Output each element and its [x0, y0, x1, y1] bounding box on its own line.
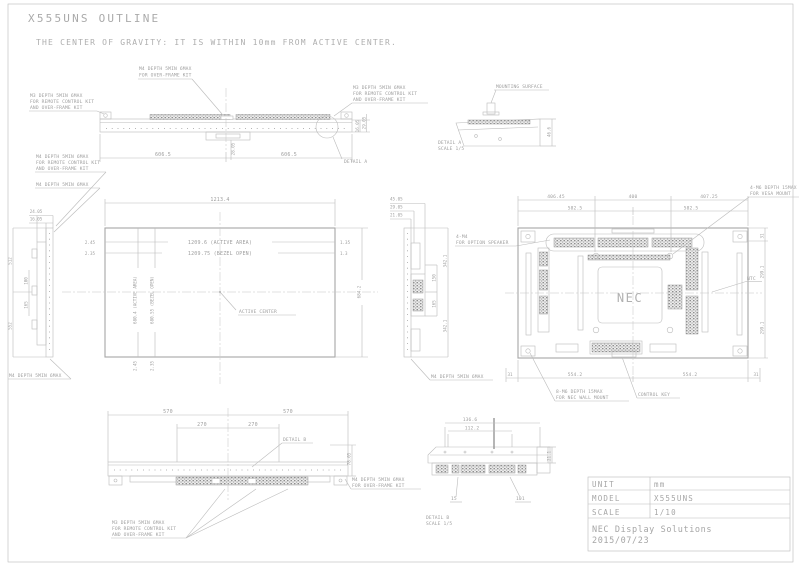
mounting-surface-label: MOUNTING SURFACE — [496, 84, 543, 90]
dim-bottom-left-2: 2.35 — [150, 360, 155, 371]
unit-label: UNIT — [592, 480, 615, 489]
front-view-active-dim: 1209.6 (ACTIVE AREA) 2.45 1.35 — [85, 240, 351, 246]
dim-3: 270 — [197, 422, 207, 428]
dim-bottom-4: 31 — [753, 372, 759, 377]
detail-b-callout: DETAIL B — [252, 437, 313, 467]
dim-right: 21.1 — [547, 450, 552, 461]
dim-right-2: 299.1 — [760, 265, 765, 278]
dim-1: 570 — [163, 409, 173, 415]
dim-top-3: 407.25 — [700, 194, 718, 200]
drawing-sheet: X555UNS OUTLINE THE CENTER OF GRAVITY: I… — [0, 0, 802, 567]
dim-right-3: 299.1 — [760, 321, 765, 334]
svg-text:FOR REMOTE CONTROL KIT: FOR REMOTE CONTROL KIT — [112, 526, 176, 532]
dim-right-bottom: 1.3 — [340, 251, 348, 256]
front-view: 1213.4 1209.6 (ACTIVE AREA) 2.45 1.35 12… — [62, 197, 378, 384]
svg-text:M4 DEPTH 5MIN 6MAX: M4 DEPTH 5MIN 6MAX — [139, 66, 192, 72]
svg-text:M4 DEPTH 5MIN 6MAX: M4 DEPTH 5MIN 6MAX — [431, 374, 484, 380]
dim-2: 570 — [283, 409, 293, 415]
left-side-view: 24.05 16.05 512 552 100 165 M4 DEPTH 5MI… — [8, 154, 107, 379]
svg-text:M3 DEPTH 5MIN 6MAX: M3 DEPTH 5MIN 6MAX — [353, 85, 406, 91]
detail-a-view: MOUNTING SURFACE 46.6 DETAIL A SCALE 1/5 — [438, 84, 556, 152]
detail-a-screw — [487, 103, 495, 114]
dim-center-depth: 28.05 — [231, 142, 236, 155]
dim-active-height: 680.4 (ACTIVE AREA) — [133, 276, 138, 324]
detail-b-view: 136.6 112.2 21.1 15 101 DETAIL B SCALE 1… — [426, 417, 556, 527]
dim-depth-1: 24.05 — [30, 209, 43, 214]
svg-text:FOR OVER-FRAME KIT: FOR OVER-FRAME KIT — [352, 483, 405, 489]
dim-half-left: 606.5 — [155, 152, 171, 158]
top-vent-right — [236, 115, 330, 120]
dim-width: 1213.4 — [210, 197, 229, 203]
rear-handle-right — [737, 253, 742, 335]
top-view-note-right: M3 DEPTH 5MIN 6MAX FOR REMOTE CONTROL KI… — [334, 85, 428, 116]
bottom-depth-dim: 78.05 — [330, 445, 356, 476]
top-view-note-left: M3 DEPTH 5MIN 6MAX FOR REMOTE CONTROL KI… — [29, 93, 104, 114]
left-view-note-bottom: M4 DEPTH 5MIN 6MAX — [8, 359, 71, 379]
svg-text:M3 DEPTH 5MIN 6MAX: M3 DEPTH 5MIN 6MAX — [112, 520, 165, 526]
front-view-height-dims: 680.4 (ACTIVE AREA) 680.55 (BEZEL OPEN) … — [133, 228, 369, 371]
dim-depth-1: 45.05 — [390, 197, 403, 202]
svg-text:AND OVER-FRAME KIT: AND OVER-FRAME KIT — [353, 97, 406, 103]
dim-bezel-height: 680.55 (BEZEL OPEN) — [150, 276, 155, 324]
svg-text:AND OVER-FRAME KIT: AND OVER-FRAME KIT — [112, 532, 165, 538]
svg-text:FOR REMOTE CONTROL KIT: FOR REMOTE CONTROL KIT — [30, 99, 94, 105]
rear-handle-left — [526, 253, 531, 335]
option-slot — [668, 285, 682, 309]
dim-depth-2: 16.05 — [30, 217, 43, 222]
dim-bottom-3: 554.2 — [683, 372, 698, 378]
dim-depth-2: 29.05 — [390, 205, 403, 210]
dim-depth: 78.05 — [347, 452, 352, 465]
scale-value: 1/10 — [654, 508, 677, 517]
dim-top-2: 400 — [629, 194, 638, 200]
title-block: UNIT mm MODEL X555UNS SCALE 1/10 NEC Dis… — [588, 477, 790, 551]
svg-text:4-M4: 4-M4 — [456, 234, 468, 240]
front-view-width-dim: 1213.4 — [105, 197, 335, 226]
bottom-note-right: M4 DEPTH 5MIN 6MAX FOR OVER-FRAME KIT — [345, 477, 421, 489]
dim-bottom-1: 31 — [507, 372, 513, 377]
dim-top-4: 582.5 — [568, 206, 583, 212]
left-view-top-dims: 24.05 16.05 — [29, 209, 53, 242]
bottom-view: 570 570 270 270 DETAIL B 78.05 M4 DEPTH … — [108, 408, 421, 538]
svg-text:AND OVER-FRAME KIT: AND OVER-FRAME KIT — [36, 166, 89, 172]
svg-text:FOR REMOTE CONTROL KIT: FOR REMOTE CONTROL KIT — [353, 91, 417, 97]
dim-depth-2: 29.05 — [362, 116, 367, 129]
dim-bottom-2: 554.2 — [568, 372, 583, 378]
dim-top-5: 582.5 — [684, 206, 699, 212]
svg-text:8-M6 DEPTH 15MAX: 8-M6 DEPTH 15MAX — [556, 389, 603, 395]
left-view-note-mid: M4 DEPTH 5MIN 6MAX — [35, 182, 100, 232]
svg-text:FOR OVER-FRAME KIT: FOR OVER-FRAME KIT — [139, 73, 192, 79]
svg-text:DETAIL B: DETAIL B — [283, 437, 306, 443]
outline-drawing: X555UNS OUTLINE THE CENTER OF GRAVITY: I… — [0, 0, 802, 567]
dim-right-top: 1.35 — [340, 240, 351, 245]
detail-a-depth-dim: 46.6 — [547, 126, 552, 137]
company-name: NEC Display Solutions — [592, 525, 712, 535]
page-subtitle: THE CENTER OF GRAVITY: IT IS WITHIN 10mm… — [36, 38, 397, 47]
label-2: 101 — [516, 496, 525, 502]
dim-left-top: 2.45 — [85, 240, 96, 245]
dim-bottom-left-1: 2.45 — [133, 360, 138, 371]
svg-text:FOR VESA MOUNT: FOR VESA MOUNT — [750, 191, 791, 197]
detail-a-scale: SCALE 1/5 — [438, 146, 464, 152]
detail-a-caption: DETAIL A — [438, 140, 461, 146]
dim-2: 112.2 — [465, 426, 480, 432]
svg-text:FOR REMOTE CONTROL KIT: FOR REMOTE CONTROL KIT — [36, 160, 100, 166]
drawing-date: 2015/07/23 — [592, 536, 649, 546]
svg-text:M4 DEPTH 5MIN 6MAX: M4 DEPTH 5MIN 6MAX — [36, 154, 89, 160]
rear-view: NEC 406.45 400 407.25 582.5 582.5 — [505, 185, 799, 401]
dim-depth-3: 21.05 — [390, 213, 403, 218]
bottom-note-left: M3 DEPTH 5MIN 6MAX FOR REMOTE CONTROL KI… — [111, 489, 288, 538]
active-center-label: ACTIVE CENTER — [239, 309, 277, 315]
svg-text:M4 DEPTH 5MIN 6MAX: M4 DEPTH 5MIN 6MAX — [9, 373, 62, 379]
dim-half-right: 606.5 — [281, 152, 297, 158]
detail-b-leaders: 15 101 — [450, 477, 531, 502]
svg-text:NTC: NTC — [747, 276, 756, 282]
dim-v1: 512 — [8, 257, 13, 265]
svg-text:M4 DEPTH 5MIN 6MAX: M4 DEPTH 5MIN 6MAX — [352, 477, 405, 483]
detail-b-caption: DETAIL B — [426, 515, 449, 521]
front-view-bezel-dim: 1209.75 (BEZEL OPEN) 2.35 1.3 — [85, 251, 348, 257]
dim-v3: 165 — [24, 301, 29, 309]
dim-right-1: 31 — [760, 233, 765, 239]
svg-text:M4 DEPTH 5MIN 6MAX: M4 DEPTH 5MIN 6MAX — [36, 182, 89, 188]
top-view-right-dims: 16.05 29.05 28.05 — [231, 114, 371, 160]
dim-v2: 150 — [432, 274, 437, 282]
unit-value: mm — [654, 480, 665, 489]
right-view-speaker-note: 4-M4 FOR OPTION SPEAKER — [455, 234, 550, 246]
svg-text:FOR OPTION SPEAKER: FOR OPTION SPEAKER — [456, 240, 509, 246]
bottom-connector-strip — [176, 477, 308, 485]
dim-left-bottom: 2.35 — [85, 251, 96, 256]
dim-v4: 342.1 — [443, 319, 448, 332]
svg-text:M3 DEPTH 5MIN 6MAX: M3 DEPTH 5MIN 6MAX — [30, 93, 83, 99]
dim-v4: 552 — [8, 322, 13, 330]
detail-a-callout-label: DETAIL A — [344, 159, 367, 165]
dim-4: 270 — [248, 422, 258, 428]
page-title: X555UNS OUTLINE — [28, 12, 160, 25]
svg-text:AND OVER-FRAME KIT: AND OVER-FRAME KIT — [30, 105, 83, 111]
scale-label: SCALE — [592, 508, 621, 517]
top-view-note-overframe: M4 DEPTH 5MIN 6MAX FOR OVER-FRAME KIT — [138, 66, 222, 114]
dim-top-1: 406.45 — [547, 194, 565, 200]
model-label: MODEL — [592, 494, 621, 503]
detail-b-scale: SCALE 1/5 — [426, 521, 452, 527]
top-vent-left — [150, 115, 230, 120]
model-value: X555UNS — [654, 494, 694, 503]
top-view: 606.5 606.5 M4 DEPTH 5MIN 6MAX FOR OVER-… — [29, 66, 428, 165]
dim-1: 136.6 — [463, 417, 478, 423]
right-view-note-bottom: M4 DEPTH 5MIN 6MAX — [411, 359, 493, 380]
dim-v2: 100 — [24, 277, 29, 285]
svg-text:4-M6 DEPTH 15MAX: 4-M6 DEPTH 15MAX — [750, 185, 797, 191]
dim-v1: 342.1 — [443, 254, 448, 267]
svg-text:FOR NEC WALL MOUNT: FOR NEC WALL MOUNT — [556, 395, 609, 401]
dim-depth-1: 16.05 — [355, 119, 360, 132]
svg-text:CONTROL KEY: CONTROL KEY — [638, 392, 670, 398]
left-view-vertical-dims: 512 552 100 165 — [8, 228, 47, 357]
detail-b-dims: 136.6 112.2 21.1 — [445, 417, 556, 463]
dim-v3: 165 — [432, 300, 437, 308]
control-key-note: CONTROL KEY — [622, 357, 680, 398]
